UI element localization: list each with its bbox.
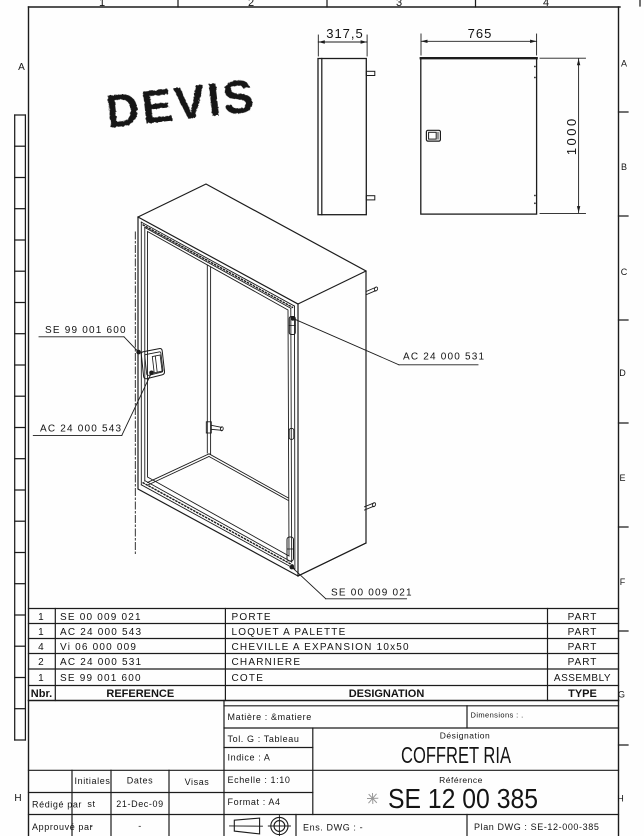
svg-text:21-Dec-09: 21-Dec-09 (116, 799, 163, 809)
svg-text:G: G (618, 690, 625, 700)
svg-text:SE 12 00 385: SE 12 00 385 (388, 783, 538, 814)
svg-text:H: H (14, 793, 21, 804)
svg-text:PART: PART (568, 612, 598, 623)
svg-text:F: F (620, 577, 626, 587)
svg-text:Initiales: Initiales (75, 776, 111, 786)
svg-text:Echelle : 1:10: Echelle : 1:10 (228, 775, 291, 785)
svg-text:2: 2 (38, 657, 45, 668)
svg-text:SE 00 009 021: SE 00 009 021 (60, 612, 142, 623)
svg-text:DESIGNATION: DESIGNATION (349, 688, 425, 700)
svg-text:Désignation: Désignation (440, 731, 490, 741)
svg-text:1: 1 (38, 627, 45, 638)
svg-text:CHARNIERE: CHARNIERE (232, 657, 302, 668)
svg-text:3: 3 (396, 0, 402, 9)
svg-text:4: 4 (38, 642, 45, 653)
svg-text:E: E (619, 473, 625, 483)
svg-text:COFFRET RIA: COFFRET RIA (401, 742, 511, 768)
svg-text:1: 1 (38, 612, 45, 623)
svg-text:Indice : A: Indice : A (228, 753, 271, 763)
svg-text:Vi 06 000 009: Vi 06 000 009 (60, 642, 137, 653)
svg-text:4: 4 (543, 0, 549, 9)
svg-text:REFERENCE: REFERENCE (106, 688, 174, 700)
svg-text:Visas: Visas (185, 777, 210, 787)
svg-text:H: H (617, 794, 624, 804)
svg-text:PART: PART (568, 642, 598, 653)
svg-text:765: 765 (468, 26, 493, 41)
svg-text:B: B (621, 162, 627, 172)
svg-text:Approuvé par: Approuvé par (32, 822, 93, 832)
svg-text:Plan DWG : SE-12-000-385: Plan DWG : SE-12-000-385 (474, 822, 599, 832)
svg-text:Rédigé par: Rédigé par (32, 800, 82, 810)
svg-text:SE 99 001 600: SE 99 001 600 (45, 325, 127, 336)
svg-text:PART: PART (568, 627, 598, 638)
svg-text:AC 24 000 543: AC 24 000 543 (40, 424, 122, 435)
svg-text:PART: PART (568, 657, 598, 668)
svg-text:Ens. DWG : -: Ens. DWG : - (303, 823, 363, 833)
svg-text:ASSEMBLY: ASSEMBLY (554, 673, 611, 684)
svg-text:317,5: 317,5 (326, 26, 364, 41)
svg-text:Format : A4: Format : A4 (228, 797, 281, 807)
svg-text:A: A (621, 59, 627, 69)
svg-text:-: - (138, 821, 142, 831)
svg-text:Dates: Dates (127, 776, 154, 786)
svg-text:AC 24 000 531: AC 24 000 531 (60, 657, 142, 668)
svg-text:st: st (87, 799, 95, 809)
svg-text:CHEVILLE A EXPANSION 10x50: CHEVILLE A EXPANSION 10x50 (232, 642, 410, 653)
svg-text:-: - (90, 821, 94, 831)
svg-text:AC 24 000 531: AC 24 000 531 (403, 352, 485, 363)
svg-text:Nbr.: Nbr. (31, 688, 52, 700)
svg-text:PORTE: PORTE (232, 612, 272, 623)
svg-text:Matière : &matiere: Matière : &matiere (228, 712, 312, 722)
svg-text:DEVIS: DEVIS (103, 69, 258, 138)
svg-text:SE 99 001 600: SE 99 001 600 (60, 673, 142, 684)
svg-text:C: C (621, 267, 628, 277)
svg-text:1: 1 (38, 673, 45, 684)
svg-text:Dimensions : .: Dimensions : . (471, 711, 524, 720)
svg-text:1: 1 (99, 0, 105, 9)
svg-text:LOQUET A PALETTE: LOQUET A PALETTE (232, 627, 347, 638)
svg-text:A: A (18, 62, 25, 73)
svg-text:AC 24 000 543: AC 24 000 543 (60, 627, 142, 638)
svg-text:Tol. G : Tableau: Tol. G : Tableau (228, 734, 300, 744)
svg-text:2: 2 (248, 0, 254, 9)
svg-text:TYPE: TYPE (568, 688, 597, 700)
svg-text:SE 00 009 021: SE 00 009 021 (331, 588, 413, 599)
svg-text:COTE: COTE (232, 673, 265, 684)
svg-text:1000: 1000 (564, 116, 579, 155)
svg-text:D: D (619, 368, 626, 378)
